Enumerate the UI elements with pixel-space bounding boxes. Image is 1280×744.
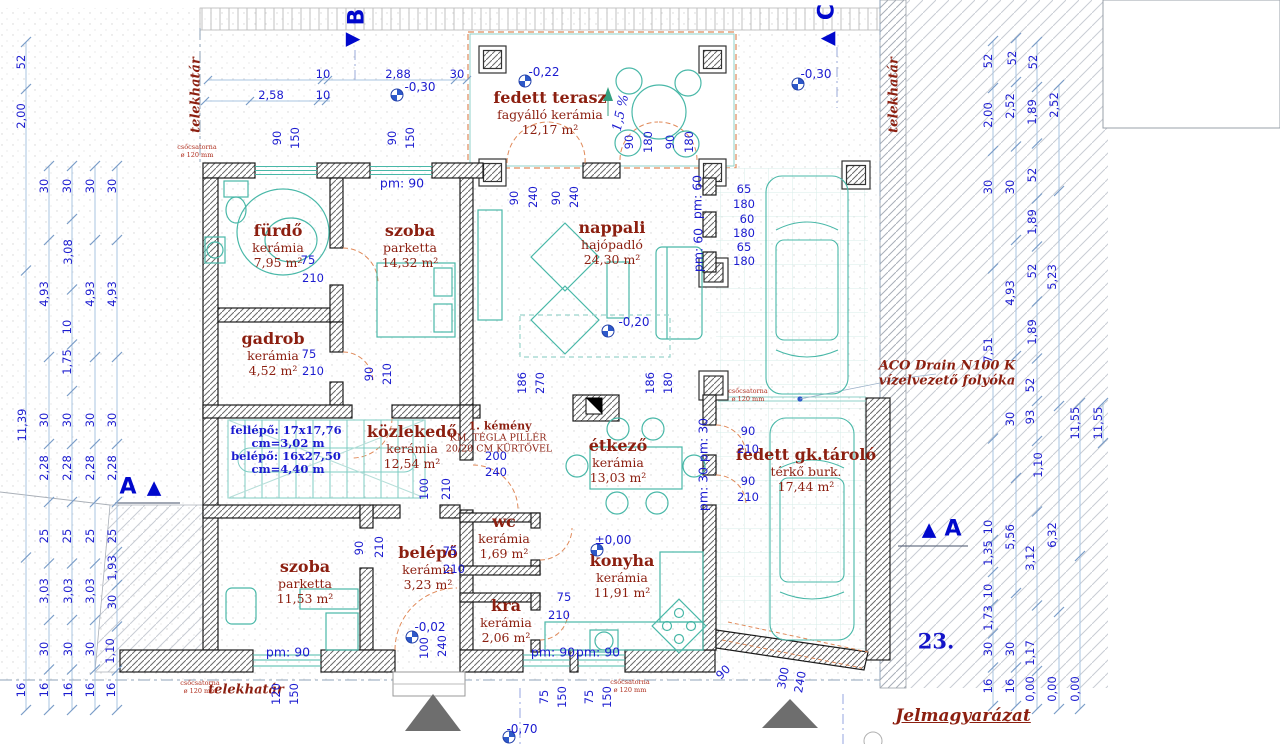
room-label-wc: wckerámia1,69 m² (478, 512, 530, 561)
dimension-label: 75 (557, 590, 572, 604)
dimension-label: 75 (443, 544, 458, 558)
room-label-nappali: nappalihajópadló24,30 m² (579, 218, 646, 267)
section-marker-letter: A (944, 517, 961, 542)
room-finish: kerámia (252, 240, 304, 255)
dimension-label: 75 (301, 253, 316, 267)
dimension-label: 10 (981, 520, 995, 535)
kemeny-note-2: KM. TÉGLA PILLÉR (450, 433, 547, 444)
dimension-label: 25 (105, 529, 119, 544)
stair-note-4: cm=4,40 m (252, 462, 325, 476)
section-marker-arrow: ▲ (922, 521, 937, 540)
dimension-label: 90 (663, 135, 677, 150)
dimension-label: 75 (582, 690, 596, 705)
dimension-label: pm: 30 (696, 418, 711, 462)
dimension-label: 30 (83, 642, 97, 657)
dimension-label: 7,51 (981, 337, 995, 363)
dimension-label: 30 (450, 67, 465, 81)
level-value: -0,70 (506, 722, 537, 736)
dimension-label: 1,89 (1025, 319, 1039, 345)
dimension-label: 270 (533, 372, 547, 394)
dimension-label: 240 (791, 670, 809, 694)
dimension-label: pm: 90 (531, 645, 575, 660)
room-area: 11,91 m² (590, 585, 655, 600)
room-label-gadrob: gadrobkerámia4,52 m² (241, 329, 304, 378)
room-area: 7,95 m² (252, 255, 304, 270)
dimension-label: 90 (270, 131, 284, 146)
dimension-label: 210 (380, 363, 394, 385)
dimension-label: 2,52 (1003, 93, 1017, 119)
dimension-label: 30 (60, 179, 74, 194)
dimension-label: 11,39 (15, 409, 29, 442)
section-marker-letter: A (119, 475, 136, 500)
room-label-furdo: fürdőkerámia7,95 m² (252, 221, 304, 270)
dimension-label: 120 (269, 683, 283, 705)
dimension-label: 3,03 (61, 578, 75, 604)
dimension-label: 90 (741, 474, 756, 488)
dimension-label: 2,52 (1047, 92, 1061, 118)
dimension-label: 180 (641, 131, 655, 153)
room-finish: kerámia (480, 615, 532, 630)
dimension-label: 16 (83, 683, 97, 698)
dimension-label: 180 (733, 254, 755, 268)
dimension-label: 3,03 (37, 578, 51, 604)
dimension-label: 60 (740, 212, 755, 226)
downpipe-note-1: csőcsatorna ø 120 mm (177, 143, 216, 159)
stair-note-1: fellépő: 17x17,76 (230, 423, 341, 437)
dimension-label: 210 (548, 608, 570, 622)
room-name: szoba (277, 557, 334, 576)
dimension-label: 1,17 (1023, 640, 1037, 666)
dimension-label: 30 (1003, 412, 1017, 427)
section-marker-arrow: ▶ (346, 30, 361, 49)
dimension-label: 1,10 (103, 638, 117, 664)
room-area: 14,32 m² (382, 255, 439, 270)
dimension-label: 180 (733, 226, 755, 240)
dimension-label: 30 (981, 642, 995, 657)
dimension-label: 30 (37, 413, 51, 428)
level-value: -0,30 (404, 80, 435, 94)
level-value: -0,22 (528, 65, 559, 79)
dimension-label: 65 (737, 182, 752, 196)
dimension-label: 240 (485, 465, 507, 479)
dimension-label: 150 (288, 127, 302, 149)
room-finish: kerámia (589, 455, 648, 470)
dimension-label: 3,12 (1023, 545, 1037, 571)
dimension-label: 25 (60, 529, 74, 544)
label-layer: fürdőkerámia7,95 m²szobaparketta14,32 m²… (0, 0, 1280, 744)
room-name: szoba (382, 221, 439, 240)
dimension-label: 52 (1023, 378, 1037, 393)
level-marker-icon (391, 89, 404, 102)
dimension-label: 240 (526, 186, 540, 208)
room-label-etkezo: étkezőkerámia13,03 m² (589, 436, 648, 485)
dimension-label: 0,00 (1023, 676, 1037, 702)
dimension-label: 300 (774, 666, 792, 690)
level-marker-icon (602, 325, 615, 338)
dimension-label: 4,93 (37, 281, 51, 307)
dimension-label: 90 (741, 424, 756, 438)
dimension-label: 30 (37, 642, 51, 657)
dimension-label: 186 (515, 372, 529, 394)
room-name: fürdő (252, 221, 304, 240)
dimension-label: 30 (105, 595, 119, 610)
dimension-label: 90 (362, 367, 376, 382)
dimension-label: 30 (1003, 642, 1017, 657)
room-area: 4,52 m² (241, 363, 304, 378)
dimension-label: pm: 90 (266, 645, 310, 660)
level-value: ±0,00 (595, 533, 632, 547)
dimension-label: 16 (1003, 679, 1017, 694)
dimension-label: pm: 60 (690, 175, 705, 219)
dimension-label: 150 (600, 686, 614, 708)
slope-label: 1,5 % (610, 93, 632, 132)
dimension-label: 52 (1025, 264, 1039, 279)
dimension-label: 210 (372, 536, 386, 558)
dimension-label: 0,00 (1068, 676, 1082, 702)
dimension-label: 16 (37, 683, 51, 698)
room-name: étkező (589, 436, 648, 455)
dimension-label: 2,28 (60, 455, 74, 481)
downpipe-note-2: csőcsatorna ø 120 mm (728, 387, 767, 403)
room-area: 1,69 m² (478, 546, 530, 561)
dimension-label: 180 (682, 131, 696, 153)
room-name: kra (480, 596, 532, 615)
room-finish: parketta (277, 576, 334, 591)
dimension-label: 0,00 (1045, 676, 1059, 702)
dimension-label: 180 (661, 372, 675, 394)
dimension-label: 11,55 (1068, 407, 1082, 440)
dimension-label: 75 (302, 347, 317, 361)
dimension-label: 30 (83, 179, 97, 194)
dimension-label: 2,28 (37, 455, 51, 481)
dimension-label: 4,93 (1003, 280, 1017, 306)
room-finish: parketta (382, 240, 439, 255)
dimension-label: 2,28 (105, 455, 119, 481)
sheet-number: 23. (918, 629, 955, 654)
dimension-label: 16 (104, 683, 118, 698)
dimension-label: pm: 90 (576, 645, 620, 660)
room-name: gadrob (241, 329, 304, 348)
room-label-kra: krakerámia2,06 m² (480, 596, 532, 645)
dimension-label: 150 (287, 683, 301, 705)
dimension-label: 5,56 (1003, 524, 1017, 550)
telekhatar-left: telekhatár (189, 57, 204, 133)
dimension-label: 75 (537, 690, 551, 705)
dimension-label: 210 (439, 478, 453, 500)
dimension-label: 210 (737, 490, 759, 504)
section-marker-arrow: ◀ (821, 29, 836, 48)
dimension-label: 100 (417, 478, 431, 500)
dimension-label: 150 (403, 127, 417, 149)
room-finish: térkő burk. (736, 464, 876, 479)
dimension-label: 93 (1023, 410, 1037, 425)
dimension-label: 10 (60, 320, 74, 335)
dimension-label: 2,00 (14, 103, 28, 129)
dimension-label: 2,88 (385, 67, 411, 81)
dimension-label: 90 (507, 191, 521, 206)
dimension-label: 5,23 (1045, 264, 1059, 290)
room-name: nappali (579, 218, 646, 237)
dimension-label: 52 (1005, 51, 1019, 66)
section-marker-arrow: ▲ (147, 479, 162, 498)
dimension-label: 200 (485, 449, 507, 463)
dimension-label: 10 (316, 88, 331, 102)
dimension-label: 1,93 (105, 555, 119, 581)
room-name: fedett terasz (493, 88, 606, 107)
dimension-label: 210 (737, 442, 759, 456)
room-label-konyha: konyhakerámia11,91 m² (590, 551, 655, 600)
dimension-label: 52 (14, 55, 28, 70)
floor-plan-sheet: fürdőkerámia7,95 m²szobaparketta14,32 m²… (0, 0, 1280, 744)
downpipe-note-4: csőcsatorna ø 120 mm (610, 678, 649, 694)
dimension-label: 4,93 (105, 281, 119, 307)
dimension-label: 4,93 (83, 281, 97, 307)
dimension-label: 240 (567, 186, 581, 208)
dimension-label: 30 (981, 180, 995, 195)
dimension-label: 16 (14, 683, 28, 698)
room-area: 12,54 m² (367, 456, 457, 471)
dimension-label: 1,75 (60, 349, 74, 375)
room-name: wc (478, 512, 530, 531)
dimension-label: 90 (385, 131, 399, 146)
level-value: -0,30 (800, 67, 831, 81)
dimension-label: 210 (443, 562, 465, 576)
dimension-label: 2,00 (981, 102, 995, 128)
dimension-label: 100 (417, 637, 431, 659)
room-finish: kerámia (478, 531, 530, 546)
aco-drain-line2: vízelvezető folyóka (879, 374, 1016, 389)
kemeny-note-1: 1. kémény (469, 420, 532, 433)
room-label-kozlekedo: közlekedőkerámia12,54 m² (367, 422, 457, 471)
room-finish: hajópadló (579, 237, 646, 252)
room-area: 11,53 m² (277, 591, 334, 606)
dimension-label: 52 (1026, 55, 1040, 70)
section-marker-letter: C (815, 4, 840, 20)
dimension-label: 1,89 (1025, 209, 1039, 235)
dimension-label: 16 (61, 683, 75, 698)
room-label-szoba-top: szobaparketta14,32 m² (382, 221, 439, 270)
dimension-label: pm: 60 (691, 228, 706, 272)
dimension-label: 25 (83, 529, 97, 544)
dimension-label: 1,35 (981, 540, 995, 566)
room-area: 2,06 m² (480, 630, 532, 645)
dimension-label: 210 (302, 364, 324, 378)
level-value: -0,02 (414, 620, 445, 634)
dimension-label: 30 (1003, 180, 1017, 195)
dimension-label: 30 (37, 179, 51, 194)
dimension-label: 1,73 (981, 605, 995, 631)
dimension-label: 30 (105, 179, 119, 194)
telekhatar-right: telekhatár (887, 57, 902, 133)
dimension-label: 2,58 (258, 88, 284, 102)
room-area: 24,30 m² (579, 252, 646, 267)
dimension-label: 2,28 (83, 455, 97, 481)
dimension-label: 1,89 (1025, 99, 1039, 125)
room-finish: kerámia (241, 348, 304, 363)
dimension-label: 210 (302, 271, 324, 285)
dimension-label: 25 (37, 529, 51, 544)
dimension-label: 6,32 (1045, 522, 1059, 548)
dimension-label: 65 (737, 240, 752, 254)
dimension-label: 30 (61, 642, 75, 657)
dimension-label: 150 (555, 686, 569, 708)
stair-note-3: belépő: 16x27,50 (231, 449, 341, 463)
dimension-label: pm: 30 (696, 467, 711, 511)
dimension-label: 52 (1025, 168, 1039, 183)
dimension-label: 90 (713, 662, 733, 682)
room-area: 3,23 m² (398, 577, 457, 592)
dimension-label: pm: 90 (380, 176, 424, 191)
room-area: 12,17 m² (493, 122, 606, 137)
dimension-label: 30 (60, 413, 74, 428)
dimension-label: 30 (105, 413, 119, 428)
dimension-label: 90 (549, 191, 563, 206)
dimension-label: 180 (733, 197, 755, 211)
dimension-label: 11,55 (1091, 407, 1105, 440)
level-value: -0,20 (618, 315, 649, 329)
dimension-label: 16 (981, 679, 995, 694)
dimension-label: 186 (643, 372, 657, 394)
dimension-label: 52 (981, 54, 995, 69)
dimension-label: 10 (981, 584, 995, 599)
dimension-label: 90 (622, 135, 636, 150)
room-label-szoba-bottom: szobaparketta11,53 m² (277, 557, 334, 606)
room-area: 13,03 m² (589, 470, 648, 485)
downpipe-note-3: csőcsatorna ø 120 mm (180, 679, 219, 695)
room-name: közlekedő (367, 422, 457, 441)
legend-title: Jelmagyarázat (895, 706, 1031, 726)
dimension-label: 10 (316, 67, 331, 81)
dimension-label: 3,03 (83, 578, 97, 604)
room-finish: kerámia (590, 570, 655, 585)
room-label-fedett-terasz: fedett teraszfagyálló kerámia12,17 m² (493, 88, 606, 137)
dimension-label: 1,10 (1031, 452, 1045, 478)
room-finish: fagyálló kerámia (493, 107, 606, 122)
stair-note-2: cm=3,02 m (252, 436, 325, 450)
section-marker-letter: B (345, 9, 370, 26)
dimension-label: 30 (83, 413, 97, 428)
dimension-label: 240 (435, 635, 449, 657)
dimension-label: 90 (352, 541, 366, 556)
room-finish: kerámia (367, 441, 457, 456)
dimension-label: 3,08 (61, 239, 75, 265)
